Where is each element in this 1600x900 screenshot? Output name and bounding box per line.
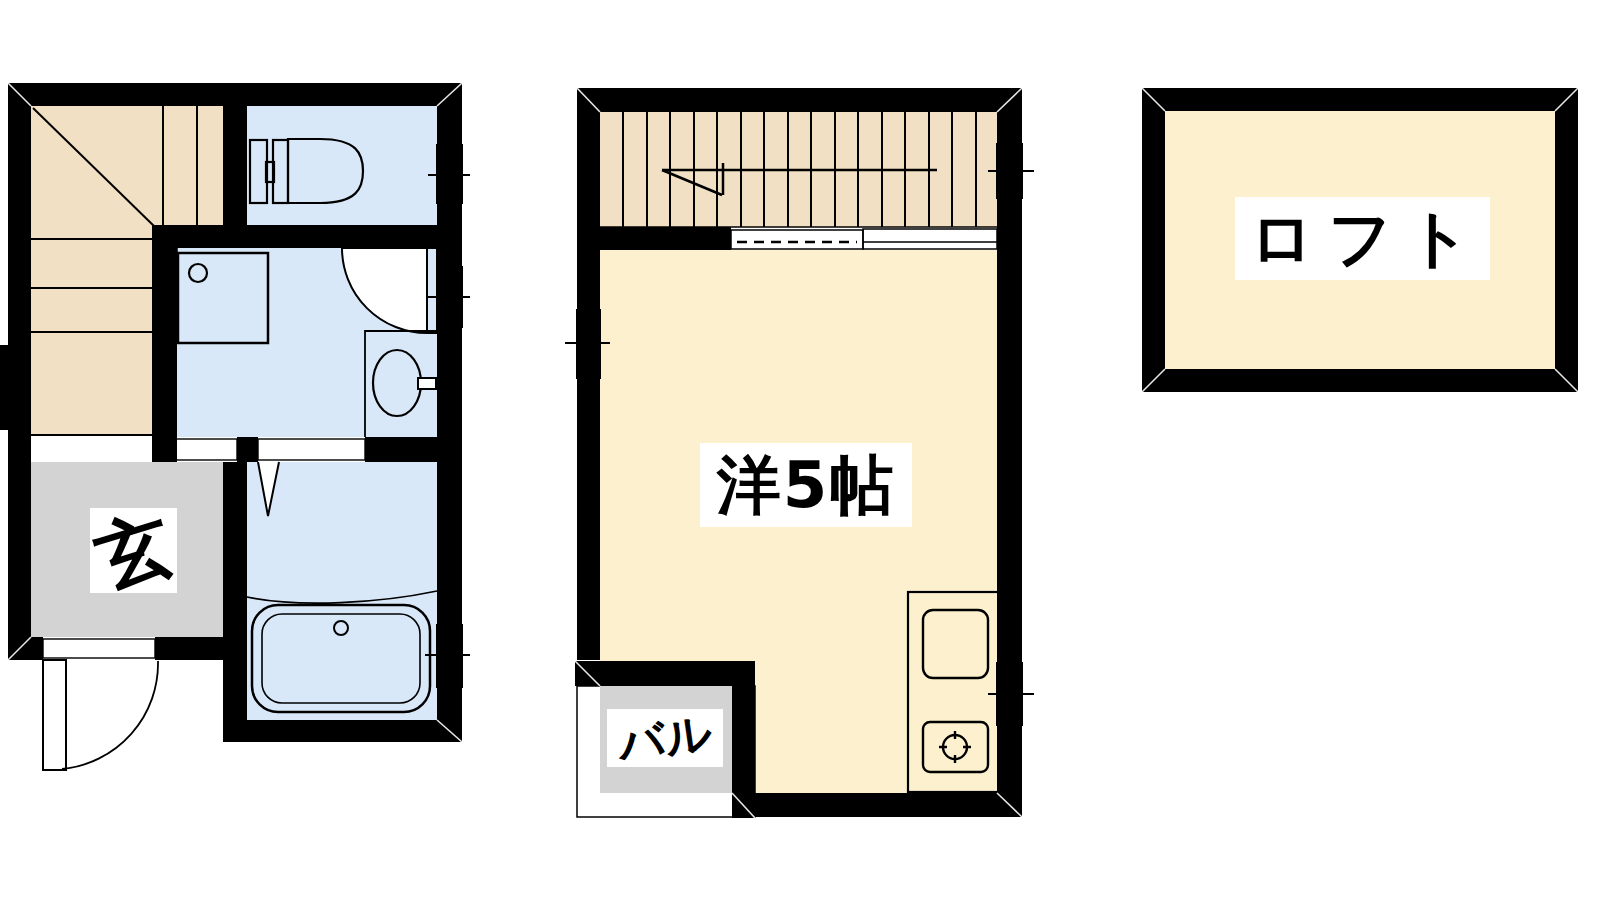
main-room-label: 洋5帖 <box>700 443 912 527</box>
handrail-solid <box>863 229 997 249</box>
main-room-label-text: 洋5帖 <box>717 453 896 517</box>
entrance-label-text: 玄 <box>87 504 179 596</box>
loft-label-text: ロフト <box>1250 207 1485 270</box>
bathroom <box>247 462 437 720</box>
balcony-label: バル <box>607 709 723 767</box>
toilet-room <box>247 106 437 225</box>
loft-label: ロフト <box>1235 197 1490 280</box>
balcony-label-text: バル <box>615 709 715 768</box>
first-floor <box>0 83 470 770</box>
entrance-label: 玄 <box>90 508 177 593</box>
handrail-dashed <box>731 230 863 249</box>
stairs-floor-upper <box>31 106 223 227</box>
entry-door-swing <box>43 660 158 770</box>
floorplan-canvas: 玄 洋5帖 バル ロフト <box>0 0 1600 900</box>
entry-door-opening <box>43 639 155 658</box>
